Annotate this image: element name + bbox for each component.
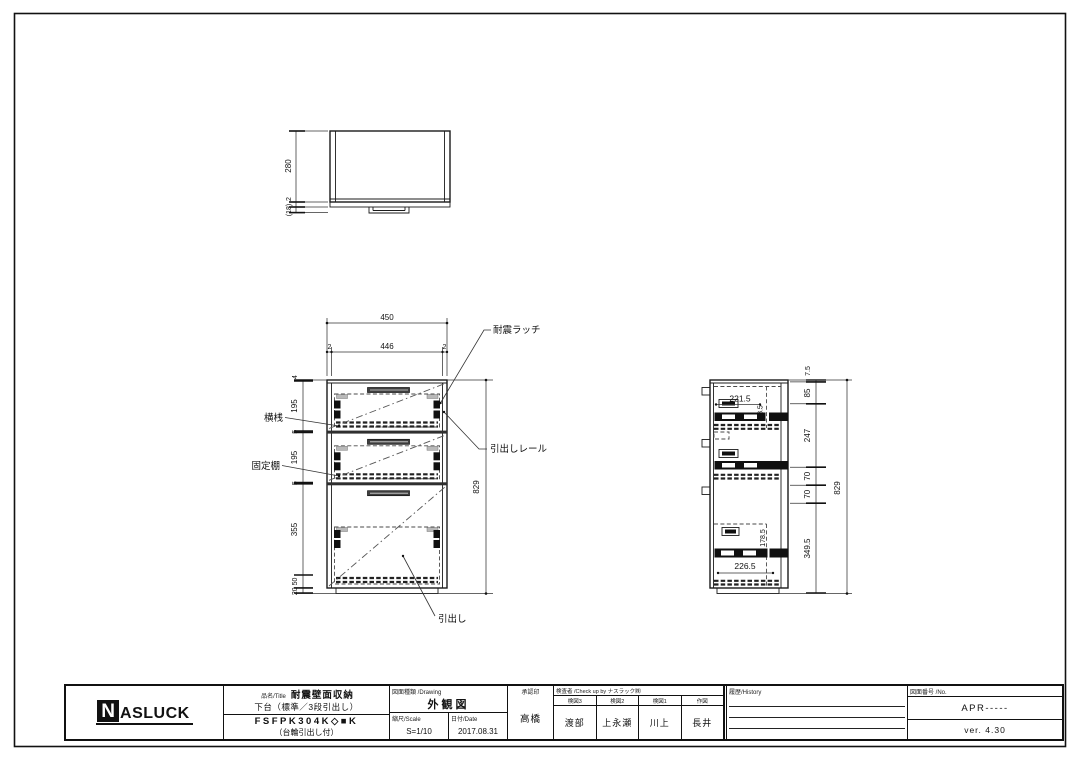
drawing-number: APR-----	[908, 696, 1062, 719]
checker3-name: 渡部	[554, 706, 596, 739]
scale-cell: 縮尺/Scale S=1/10	[390, 713, 448, 739]
dim-side-247: 247	[803, 428, 812, 442]
logo-cell: N ASLUCK	[66, 686, 224, 739]
latch-tab-3	[702, 487, 710, 495]
product-note: （台輪引出し付）	[226, 727, 387, 738]
dim-base-h: 20	[292, 587, 299, 595]
checker2-name: 上永瀬	[597, 706, 639, 739]
dim-drawer1-h: 195	[290, 399, 299, 413]
dim-overall-width: 450	[380, 313, 394, 322]
side-height-chain: 7.5 85 247 70 70 349.5 829	[779, 366, 852, 595]
dim-top-depth: 280	[284, 159, 293, 173]
dim-box1-depth: 221.5	[729, 394, 751, 404]
dim-box1-height: 98.5	[758, 405, 765, 419]
history-line	[729, 707, 905, 718]
product-name-block: 品名/Title 耐震壁面収納 下台（標準／3段引出し）	[224, 686, 389, 715]
dim-top-edge: 2	[286, 197, 293, 201]
drawing-canvas: 280 2 (18)	[0, 0, 1080, 764]
approval-label: 承認印	[508, 686, 553, 696]
sheet-frame	[15, 14, 1066, 747]
drawer-3	[329, 487, 445, 586]
drawing-type-value: 外観図	[390, 696, 507, 712]
scale-label: 縮尺/Scale	[390, 713, 448, 723]
side-drawer-2	[714, 450, 782, 479]
scale-value: S=1/10	[390, 723, 448, 739]
history-line	[729, 718, 905, 729]
front-overall-height: 829	[438, 379, 493, 595]
title-block: N ASLUCK 品名/Title 耐震壁面収納 下台（標準／3段引出し） FS…	[64, 684, 1064, 741]
drawing-sheet: { "top_view": { "dim_depth": "280", "dim…	[0, 0, 1080, 764]
drawer-2	[329, 435, 445, 480]
checkers-cell: 検査者 /Check up by ナスラック㈱ 検図3 渡部 検図2 上永瀬 検…	[554, 686, 724, 739]
drawing-number-label: 図面番号 /No.	[908, 686, 1062, 696]
product-label: 品名/Title	[259, 690, 288, 700]
dim-side-70a: 70	[803, 471, 812, 480]
product-subname: 下台（標準／3段引出し）	[226, 701, 387, 713]
front-width-dims: 450 2 446 2	[326, 313, 449, 376]
product-code-block: FSFPK304K◇■K （台輪引出し付）	[224, 715, 389, 739]
date-value: 2017.08.31	[449, 723, 507, 739]
drawing-version: ver. 4.30	[908, 719, 1062, 739]
drawing-type-label: 図面種類 /Drawing	[390, 686, 507, 696]
dim-side-349: 349.5	[803, 538, 812, 559]
dim-top-panel: 4	[292, 375, 299, 379]
checker2-label: 検図2	[597, 696, 639, 706]
dim-side-left: 2	[328, 344, 332, 351]
callout-cross-rail: 横桟	[264, 412, 284, 424]
drafter-col: 作図 長井	[681, 696, 724, 739]
callout-latch: 耐震ラッチ	[493, 324, 541, 336]
dim-lower-h: 355	[290, 522, 299, 536]
dim-shelf1: 5	[292, 430, 299, 434]
top-view: 280 2 (18)	[284, 131, 450, 216]
history-cell: 履歴/History	[724, 686, 908, 739]
callout-drawer-rail: 引出しレール	[490, 443, 548, 455]
product-name: 耐震壁面収納	[291, 687, 354, 701]
product-code: FSFPK304K◇■K	[226, 716, 387, 727]
history-line	[729, 696, 905, 707]
plinth-handle-profile	[369, 207, 409, 213]
latch-tab-2	[702, 440, 710, 448]
nasluck-logo: N ASLUCK	[96, 700, 192, 725]
dim-side-overall-height: 829	[833, 481, 842, 495]
history-line	[729, 729, 905, 739]
side-drawer-1: 221.5 98.5	[714, 387, 782, 440]
logo-n-mark: N	[97, 700, 119, 722]
dim-side-right: 2	[443, 344, 447, 351]
latch-tab-1	[702, 388, 710, 396]
checker-col-1: 検図1 川上	[638, 696, 681, 739]
dim-rail-zone: 50	[292, 578, 299, 586]
dim-side-85: 85	[803, 388, 812, 397]
approval-name: 高橋	[508, 696, 553, 739]
number-cell: 図面番号 /No. APR----- ver. 4.30	[908, 686, 1062, 739]
side-view: 221.5 98.5 178.5 226.5	[702, 366, 852, 595]
dim-drawer2-h: 195	[290, 450, 299, 464]
drafter-name: 長井	[682, 706, 724, 739]
callout-fixed-shelf: 固定棚	[251, 460, 280, 472]
dim-inner-width: 446	[380, 342, 394, 351]
date-label: 日付/Date	[449, 713, 507, 723]
checker3-label: 検図3	[554, 696, 596, 706]
checker-col-3: 検図3 渡部	[554, 696, 596, 739]
callout-drawer: 引出し	[438, 613, 467, 625]
dim-side-70b: 70	[803, 489, 812, 498]
approval-cell: 承認印 高橋	[508, 686, 554, 739]
dim-overall-height: 829	[472, 480, 481, 494]
dim-box3-depth: 226.5	[734, 561, 756, 571]
checker-col-2: 検図2 上永瀬	[596, 696, 639, 739]
drafter-label: 作図	[682, 696, 724, 706]
checker1-label: 検図1	[639, 696, 681, 706]
dim-top-handle: (18)	[286, 204, 293, 216]
side-drawer-3: 178.5 226.5	[714, 524, 781, 586]
dim-side-top-gap: 7.5	[805, 366, 812, 376]
drawing-type-cell: 図面種類 /Drawing 外観図 縮尺/Scale S=1/10 日付/Dat…	[390, 686, 508, 739]
logo-wordmark: ASLUCK	[120, 706, 190, 722]
front-view: 450 2 446 2 4 195 5 195 5	[251, 313, 547, 625]
checkers-header: 検査者 /Check up by ナスラック㈱	[554, 686, 723, 696]
drawer-1	[329, 384, 445, 429]
product-cell: 品名/Title 耐震壁面収納 下台（標準／3段引出し） FSFPK304K◇■…	[224, 686, 390, 739]
dim-box3-height: 178.5	[760, 529, 767, 547]
history-label: 履歴/History	[727, 686, 907, 696]
checker1-name: 川上	[639, 706, 681, 739]
drawing-type-block: 図面種類 /Drawing 外観図	[390, 686, 507, 713]
dim-shelf2: 5	[292, 481, 299, 485]
date-cell: 日付/Date 2017.08.31	[448, 713, 507, 739]
